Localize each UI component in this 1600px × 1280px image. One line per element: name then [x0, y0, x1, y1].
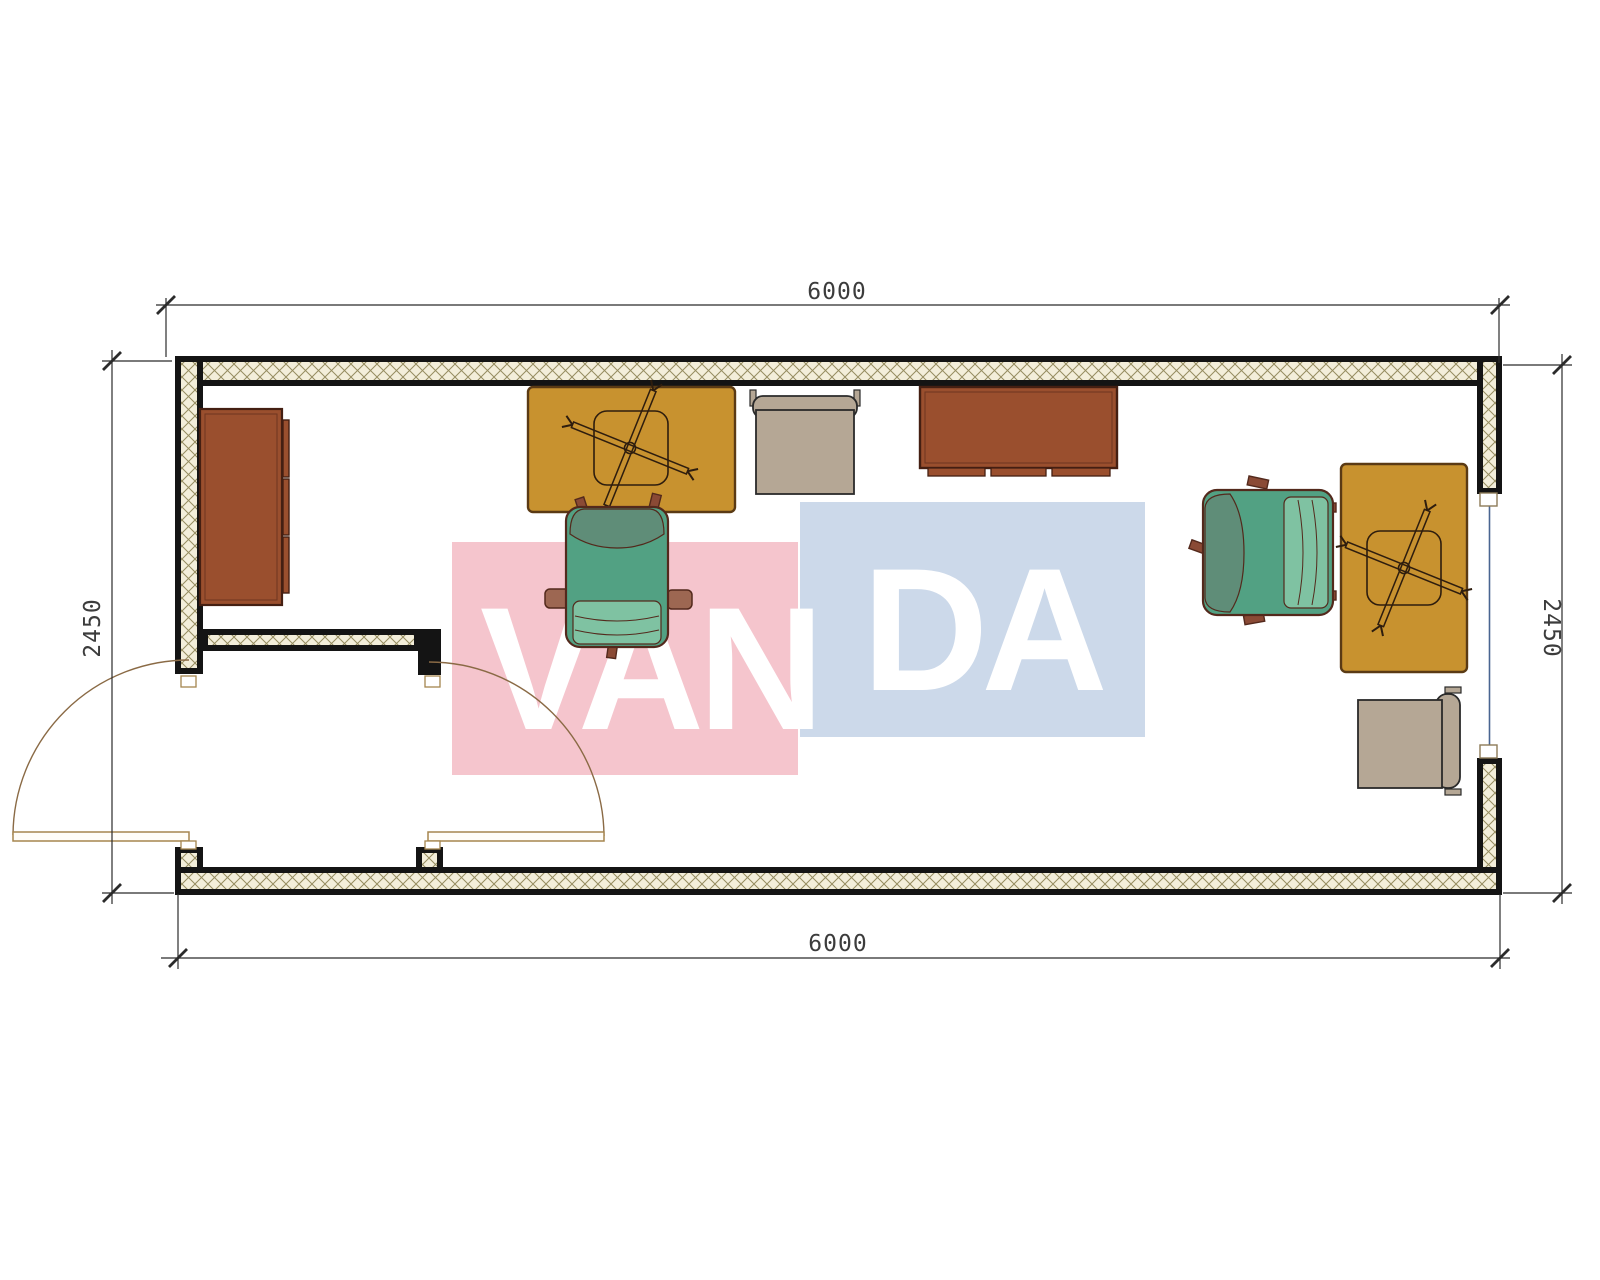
wall-left: [178, 359, 200, 671]
visitor-chair-top: [750, 390, 860, 494]
window-frame-bottom: [1480, 745, 1497, 758]
door-leaf-right: [428, 832, 604, 841]
dimension-top: [156, 296, 1510, 363]
credenza-top: [920, 387, 1117, 476]
floor-plan-canvas: VAN DA: [0, 0, 1600, 1280]
wall-right-upper: [1480, 359, 1499, 491]
credenza-base: [1052, 468, 1110, 476]
office-chair-right: [1189, 476, 1336, 625]
chair-leg: [1445, 789, 1461, 795]
door-swing-arc-right: [429, 662, 604, 836]
chair-seat: [573, 601, 661, 644]
cabinet-door-strip: [283, 537, 289, 593]
chair-leg: [1445, 687, 1461, 693]
dimension-label-top: 6000: [777, 279, 897, 305]
door-leaf-left: [13, 832, 189, 841]
window-right: [1480, 493, 1497, 758]
chair-seat: [1284, 497, 1328, 608]
wall-top: [178, 359, 1499, 383]
dimension-label-bottom: 6000: [778, 931, 898, 957]
door-frame-bottom-left: [181, 841, 196, 849]
door-frame-bottom-right: [425, 841, 440, 849]
door-frame-top-right: [425, 676, 440, 687]
wall-door-stub-left: [178, 850, 200, 870]
wall-door-head: [205, 632, 417, 648]
dimension-label-right: 2450: [1538, 568, 1564, 688]
wardrobe-cabinet-left: [200, 409, 289, 605]
window-frame-top: [1480, 493, 1497, 506]
dimension-label-left: 2450: [80, 568, 106, 688]
chair-backrest: [570, 509, 664, 548]
dimension-left: [102, 350, 174, 904]
visitor-chair-bottom-right: [1358, 687, 1461, 795]
cabinet-door-strip: [283, 479, 289, 535]
chair-seat: [1358, 700, 1442, 788]
caster: [1247, 476, 1268, 489]
wall-door-stub-right: [419, 850, 440, 870]
wall-bottom: [178, 870, 1499, 892]
credenza-base: [991, 468, 1046, 476]
credenza-base: [928, 468, 985, 476]
door-frame-top-left: [181, 676, 196, 687]
chair-seat: [756, 410, 854, 494]
cabinet-door-strip: [283, 420, 289, 477]
entrance-double-door: [13, 660, 604, 849]
office-chair-center: [545, 493, 692, 658]
chair-armrest-right: [667, 590, 692, 609]
wall-door-jamb-column: [418, 629, 441, 675]
chair-backrest: [1205, 494, 1244, 612]
plan-drawing: [0, 0, 1600, 1280]
desk-right: [1312, 464, 1497, 672]
